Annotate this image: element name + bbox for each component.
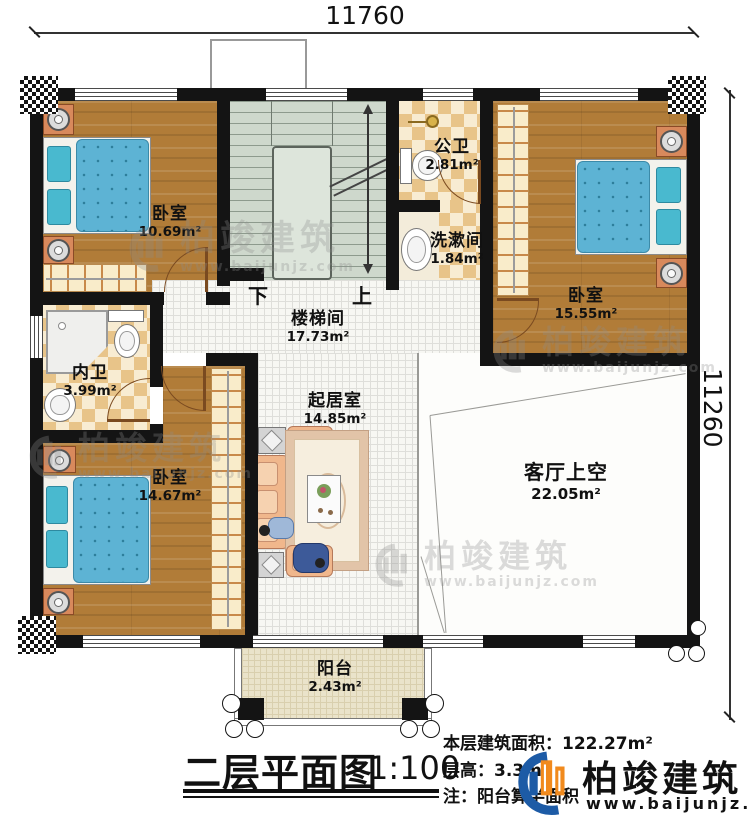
balcony-sliding-door	[253, 635, 383, 648]
room-label-washroom: 洗漱间 1.84m²	[430, 226, 484, 267]
room-label-stairwell: 楼梯间 17.73m²	[287, 304, 350, 345]
nightstand	[656, 258, 687, 288]
column-marker	[664, 618, 710, 664]
bedroom-3-wardrobe	[211, 368, 242, 630]
window	[423, 635, 483, 648]
balcony-post	[396, 694, 444, 740]
room-label-public-bath: 公卫 2.81m²	[425, 132, 478, 173]
lamp-icon	[47, 591, 70, 614]
person	[293, 543, 329, 573]
corner-hatch-mark	[18, 616, 56, 654]
lamp-icon	[660, 130, 683, 153]
stair-up-label: 上	[352, 280, 372, 309]
wall-segment	[386, 100, 399, 290]
bed-pillow	[656, 167, 681, 203]
room-label-bedroom-1: 卧室 10.69m²	[139, 199, 202, 240]
wardrobe-rod	[46, 278, 144, 280]
wall-exterior-left	[30, 88, 43, 648]
brand-logo: 柏竣建筑 www.baijunjz.com	[516, 748, 746, 820]
bed-mattress	[73, 477, 149, 583]
person	[268, 517, 294, 539]
right-dimension-label: 11260	[698, 368, 727, 448]
wall-segment	[206, 292, 230, 305]
room-label-bedroom-2: 卧室 15.55m²	[555, 281, 618, 322]
wall-exterior-right	[687, 88, 700, 648]
window	[540, 88, 638, 101]
stair-landing	[272, 146, 332, 280]
wall-segment	[30, 430, 163, 443]
bed-pillow	[46, 486, 68, 524]
nightstand	[43, 588, 74, 615]
faucet-icon	[426, 115, 439, 128]
balcony-post	[222, 694, 270, 740]
sink	[401, 228, 432, 271]
right-dimension-line	[729, 90, 731, 720]
top-dimension-line	[34, 32, 694, 34]
lamp-icon	[47, 239, 70, 262]
wardrobe-rod	[513, 107, 515, 293]
person-head	[259, 525, 270, 536]
wardrobe-rod	[227, 371, 229, 627]
bed-pillow	[46, 530, 68, 568]
bed-pillow	[656, 209, 681, 245]
bedroom-2-wardrobe	[497, 104, 529, 296]
bed-pillow	[47, 146, 71, 182]
bed-pillow	[47, 189, 71, 225]
nightstand	[43, 236, 74, 264]
stair-flight-edge	[271, 101, 272, 146]
stair-flight-edge	[332, 101, 333, 146]
corner-hatch-mark	[668, 76, 706, 114]
coffee-table	[307, 475, 341, 523]
bedroom-1-wardrobe	[43, 264, 147, 292]
corner-hatch-mark	[20, 76, 58, 114]
person-head	[315, 558, 325, 568]
room-label-living: 起居室 14.85m²	[304, 386, 367, 427]
toilet-tank	[400, 148, 412, 184]
top-dimension-label: 11760	[320, 1, 410, 30]
shower-drain-icon	[58, 322, 66, 330]
floor-plan: 11760 11260	[0, 0, 750, 827]
toilet-tank	[108, 310, 144, 322]
window	[30, 316, 43, 358]
nightstand	[43, 446, 76, 473]
toilet-bowl	[114, 324, 140, 358]
stair-arrow-down-icon	[363, 264, 373, 274]
side-table	[258, 427, 286, 454]
brand-website: www.baijunjz.com	[586, 794, 750, 813]
window	[266, 88, 347, 101]
side-table	[258, 552, 284, 578]
window	[423, 88, 473, 101]
lamp-icon	[48, 449, 71, 472]
window	[75, 88, 177, 101]
wall-segment	[245, 353, 258, 635]
stair-down-label: 下	[248, 280, 268, 309]
room-label-private-bath: 内卫 3.99m²	[63, 358, 116, 399]
stair-direction-line	[367, 112, 369, 268]
room-label-void: 客厅上空 22.05m²	[524, 456, 608, 503]
title-underline	[183, 796, 439, 798]
wall-segment	[396, 200, 440, 212]
window	[83, 635, 200, 648]
bed-mattress	[577, 161, 650, 253]
window	[583, 635, 635, 648]
brand-logo-icon	[516, 750, 578, 816]
nightstand	[656, 126, 687, 157]
room-label-bedroom-3: 卧室 14.67m²	[139, 463, 202, 504]
stair-arrow-up-icon	[363, 104, 373, 114]
room-label-balcony: 阳台 2.43m²	[308, 654, 361, 695]
wall-segment	[217, 100, 230, 286]
roof-bump-out	[210, 39, 307, 91]
title-underline	[183, 789, 439, 793]
wall-segment	[30, 292, 164, 305]
wall-segment	[480, 353, 700, 366]
void-boundary-line	[417, 353, 419, 635]
lamp-icon	[660, 262, 683, 285]
